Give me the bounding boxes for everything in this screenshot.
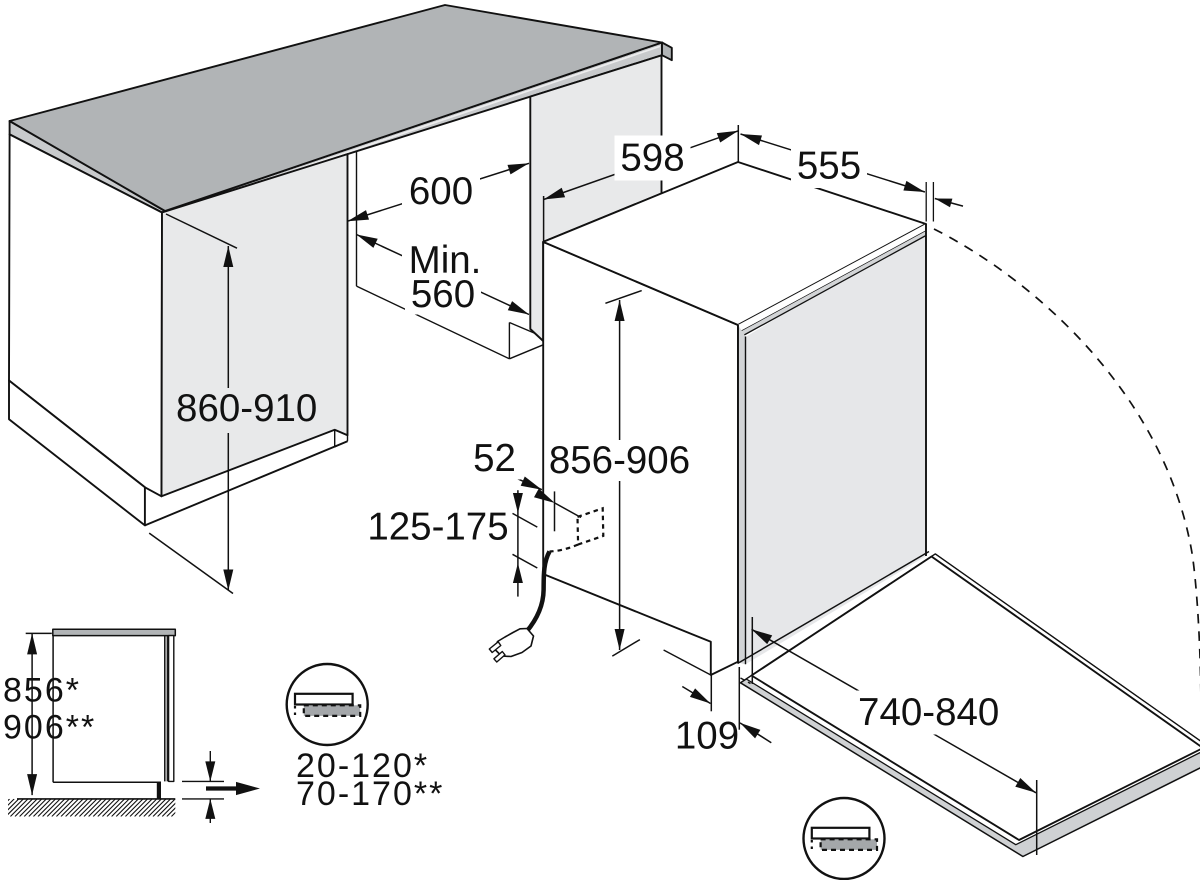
svg-text:600: 600 <box>409 170 473 213</box>
svg-text:109: 109 <box>675 715 739 758</box>
svg-text:52: 52 <box>473 437 516 480</box>
svg-text:860-910: 860-910 <box>176 387 317 430</box>
svg-text:856-906: 856-906 <box>549 439 690 482</box>
svg-text:856*: 856* <box>3 671 81 709</box>
svg-text:598: 598 <box>620 137 684 180</box>
svg-text:125-175: 125-175 <box>367 506 508 549</box>
svg-text:906**: 906** <box>3 709 96 747</box>
svg-text:555: 555 <box>797 145 861 188</box>
svg-text:70-170**: 70-170** <box>296 775 444 813</box>
svg-text:560: 560 <box>411 273 475 316</box>
svg-text:740-840: 740-840 <box>858 691 999 734</box>
